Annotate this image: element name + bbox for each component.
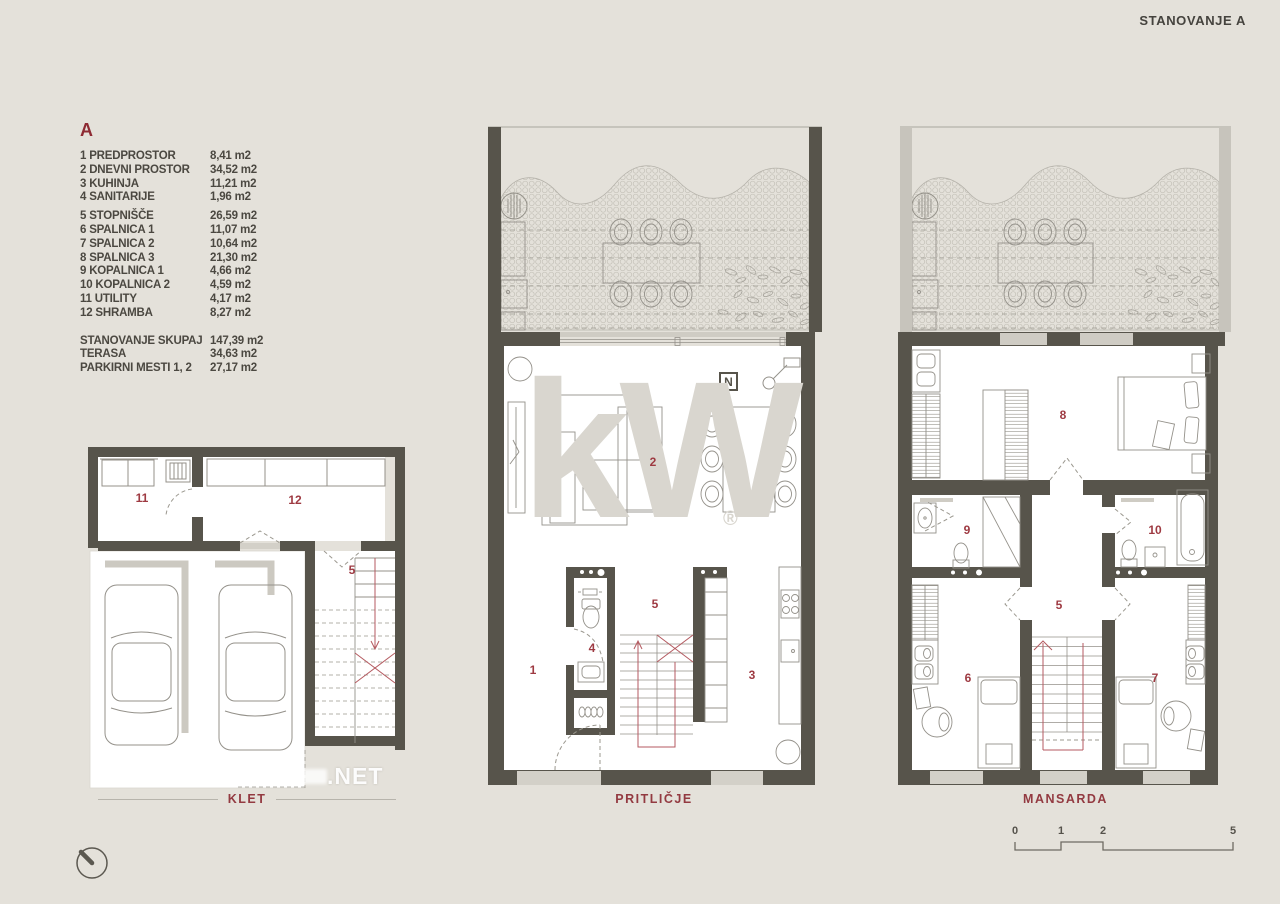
floor-plan-klet: 11 12 5 xyxy=(88,443,406,793)
room-number-entry: 1 xyxy=(530,663,537,677)
room-number-utility: 11 xyxy=(136,491,149,505)
label-line xyxy=(98,799,218,800)
room-number-bedroom3: 8 xyxy=(1060,408,1067,422)
scale-tick: 0 xyxy=(1012,825,1018,837)
legend-row: 6 SPALNICA 111,07 m2 xyxy=(80,224,340,238)
floor-plan-mansarda: 8 9 10 5 6 7 xyxy=(893,122,1238,792)
room-number-wc: 4 xyxy=(589,641,596,655)
watermark-domain: .NET xyxy=(327,763,383,790)
scale-tick: 2 xyxy=(1100,825,1106,837)
floor-label-klet: KLET xyxy=(88,792,406,806)
room-number-bathroom2: 10 xyxy=(1148,523,1162,537)
legend-row: 4 SANITARIJE1,96 m2 xyxy=(80,191,340,205)
scale-tick: 1 xyxy=(1058,825,1064,837)
legend-row: 8 SPALNICA 321,30 m2 xyxy=(80,252,340,266)
terrace-below xyxy=(900,127,1231,332)
room-number-kitchen: 3 xyxy=(749,668,756,682)
mansarda-thresholds xyxy=(930,771,1190,784)
floor-plan-pritlicje: N kW ® 1 2 3 4 5 xyxy=(483,122,825,792)
room-number-stairs-mansarda: 5 xyxy=(1056,598,1063,612)
legend: A 1 PREDPROSTOR8,41 m2 2 DNEVNI PROSTOR3… xyxy=(80,120,340,376)
legend-total-row: TERASA34,63 m2 xyxy=(80,348,340,362)
terrace-paving xyxy=(501,166,809,330)
room-number-storage: 12 xyxy=(288,493,302,507)
legend-row: 12 SHRAMBA8,27 m2 xyxy=(80,307,340,321)
legend-totals: STANOVANJE SKUPAJ147,39 m2 TERASA34,63 m… xyxy=(80,335,340,376)
wall-dot xyxy=(701,570,705,574)
klet-threshold xyxy=(240,543,280,549)
legend-row: 3 KUHINJA11,21 m2 xyxy=(80,178,340,192)
legend-row: 2 DNEVNI PROSTOR34,52 m2 xyxy=(80,164,340,178)
room-number-bathroom1: 9 xyxy=(964,523,971,537)
kw-watermark: kW xyxy=(521,341,803,559)
legend-room-list: 1 PREDPROSTOR8,41 m2 2 DNEVNI PROSTOR34,… xyxy=(80,150,340,321)
wall-dot xyxy=(713,570,717,574)
scale-tick: 5 xyxy=(1230,825,1236,837)
site-watermark: .NET xyxy=(95,763,383,790)
north-compass-icon xyxy=(72,843,112,883)
label-line xyxy=(276,799,396,800)
legend-row: 5 STOPNIŠČE26,59 m2 xyxy=(80,210,340,224)
legend-row: 9 KOPALNICA 14,66 m2 xyxy=(80,265,340,279)
room-number-bedroom1: 6 xyxy=(965,671,972,685)
legend-row: 1 PREDPROSTOR8,41 m2 xyxy=(80,150,340,164)
room-number-living: 2 xyxy=(650,455,657,469)
floor-label-pritlicje: PRITLIČJE xyxy=(483,792,825,806)
terrace-paving xyxy=(912,166,1219,330)
registered-mark: ® xyxy=(723,508,738,530)
floor-label-mansarda: MANSARDA xyxy=(893,792,1238,806)
terrace xyxy=(488,127,822,332)
page-title: STANOVANJE A xyxy=(1139,13,1246,28)
room-number-stairs-pritlicje: 5 xyxy=(652,597,659,611)
room-number-stairs-klet: 5 xyxy=(349,563,356,577)
watermark-blur-bar xyxy=(95,769,327,784)
scale-bar: 0 1 2 5 xyxy=(1002,820,1247,862)
legend-row: 10 KOPALNICA 24,59 m2 xyxy=(80,279,340,293)
room-number-bedroom2: 7 xyxy=(1152,671,1159,685)
legend-row: 11 UTILITY4,17 m2 xyxy=(80,293,340,307)
legend-row: 7 SPALNICA 210,64 m2 xyxy=(80,238,340,252)
apartment-letter: A xyxy=(80,120,340,141)
legend-total-row: PARKIRNI MESTI 1, 227,17 m2 xyxy=(80,362,340,376)
legend-total-row: STANOVANJE SKUPAJ147,39 m2 xyxy=(80,335,340,349)
